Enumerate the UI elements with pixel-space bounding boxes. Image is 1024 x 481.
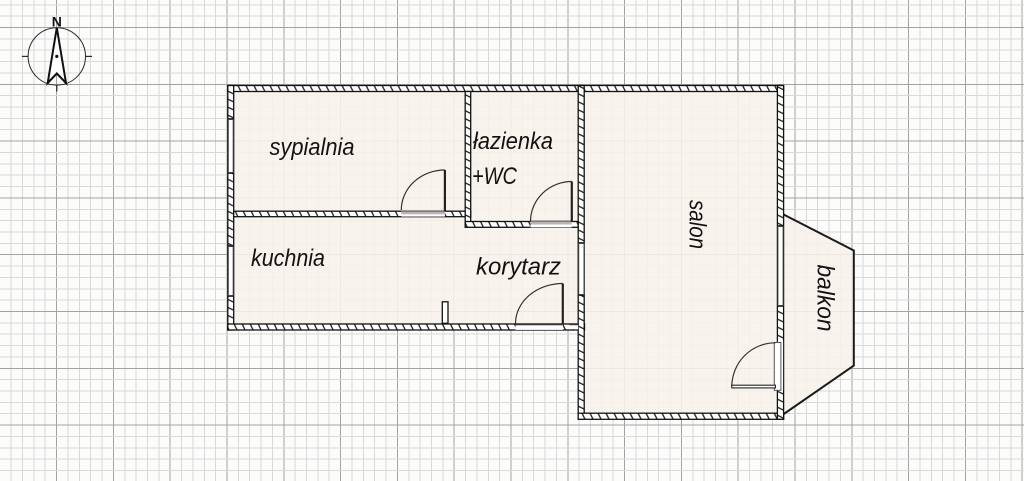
svg-text:korytarz: korytarz: [476, 254, 561, 281]
svg-text:N: N: [52, 13, 62, 29]
svg-text:sypialnia: sypialnia: [270, 134, 355, 161]
svg-text:balkon: balkon: [812, 265, 839, 332]
svg-text:salon: salon: [684, 200, 711, 249]
svg-text:łazienka: łazienka: [473, 128, 553, 155]
svg-text:kuchnia: kuchnia: [251, 245, 325, 272]
svg-text:+WC: +WC: [472, 163, 518, 190]
